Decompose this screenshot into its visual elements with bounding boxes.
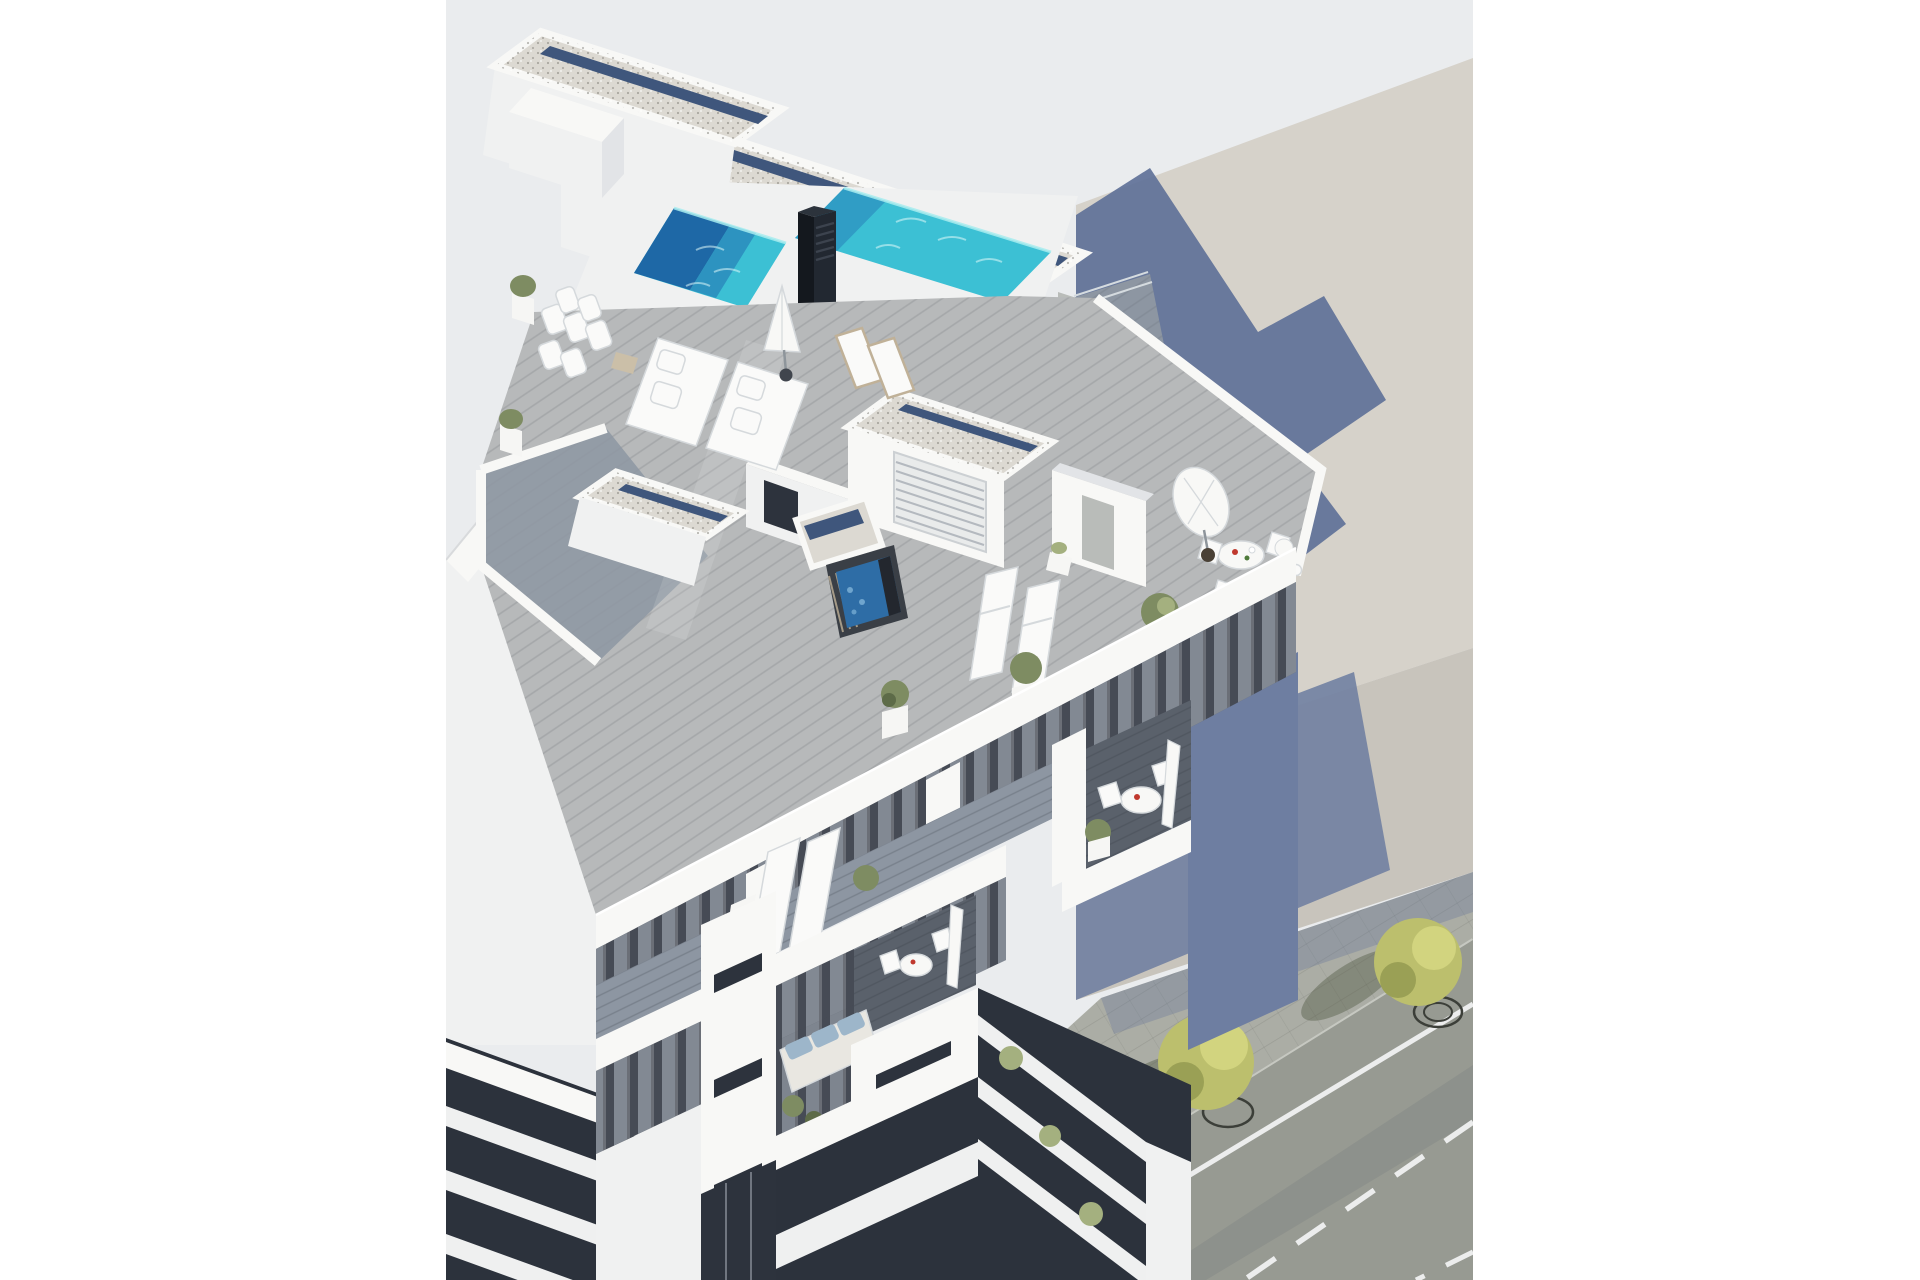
table-plant <box>1051 542 1067 554</box>
balcony-plant <box>782 1095 804 1117</box>
terrace-door <box>1082 495 1114 570</box>
corner-pillar <box>1146 1142 1191 1280</box>
balcony-bush <box>1079 1202 1103 1226</box>
jet-bubble <box>847 587 853 593</box>
olive-canopy <box>1010 652 1042 684</box>
table-item-red <box>1232 549 1238 555</box>
tree-highlight <box>1412 926 1456 970</box>
jet-bubble <box>859 599 865 605</box>
table-plate <box>1249 547 1255 553</box>
privacy-wall <box>1052 728 1086 887</box>
dining-table <box>1218 541 1264 569</box>
planter-bush <box>510 275 536 297</box>
pier-wall <box>701 891 776 1194</box>
table-item-red <box>1134 794 1140 800</box>
tree-shade-side <box>1380 962 1416 998</box>
facade-pier <box>701 891 776 1203</box>
olive-shade <box>882 693 896 707</box>
bistro-table <box>1121 787 1161 813</box>
jet-bubble <box>852 610 857 615</box>
balcony-bush <box>999 1046 1023 1070</box>
table-item-red <box>911 960 916 965</box>
table-item-green <box>1245 556 1250 561</box>
screenshot-root <box>0 0 1920 1280</box>
balcony-bush <box>1039 1125 1061 1147</box>
render-image <box>446 0 1473 1280</box>
terrace-plant <box>853 865 879 891</box>
bistro-table <box>900 954 932 976</box>
planter-bush <box>499 409 523 429</box>
parasol-base <box>1201 548 1215 562</box>
parasol-base <box>780 369 793 382</box>
